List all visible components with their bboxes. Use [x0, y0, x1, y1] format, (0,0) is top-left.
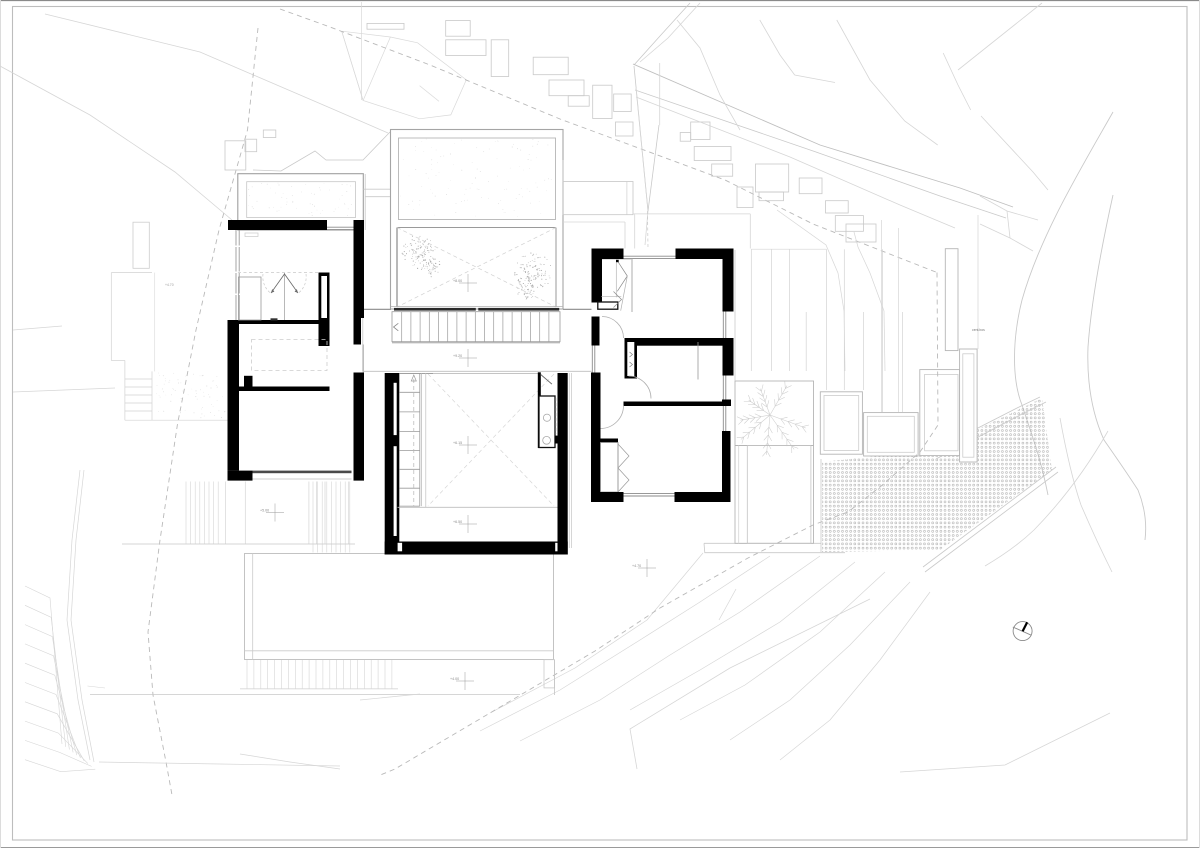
svg-text:+9.20: +9.20 — [453, 354, 462, 358]
svg-text:cent.bos: cent.bos — [972, 328, 985, 332]
svg-text:+5.00: +5.00 — [260, 508, 269, 512]
svg-text:+8.00: +8.00 — [453, 279, 462, 283]
svg-text:+4.70: +4.70 — [632, 564, 641, 568]
svg-text:+4.00: +4.00 — [450, 677, 459, 681]
svg-text:+6.50: +6.50 — [453, 520, 462, 524]
svg-text:+6.15: +6.15 — [453, 441, 462, 445]
svg-text:+4.70: +4.70 — [165, 283, 174, 287]
